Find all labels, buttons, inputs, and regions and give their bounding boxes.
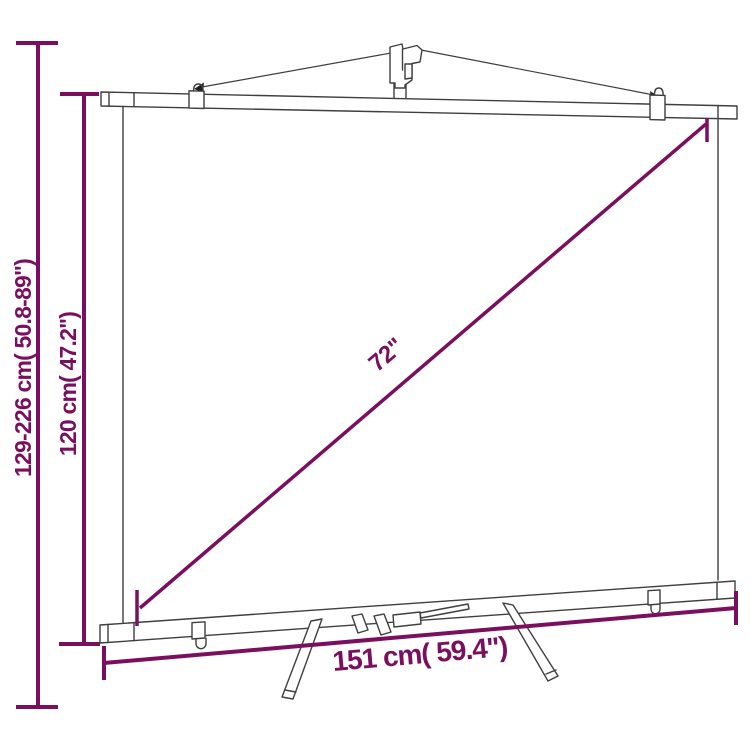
- bottom-clamp-left-hook: [196, 638, 206, 648]
- screen-height-label: 120 cm( 47.2"): [55, 312, 81, 456]
- tripod-leg-right: [503, 603, 558, 681]
- bottom-clamp-right-hook: [651, 604, 660, 613]
- top-hook-right: [655, 88, 664, 95]
- hanging-wires: [194, 50, 660, 101]
- diagram-canvas: 129-226 cm( 50.8-89") 120 cm( 47.2") 72"…: [0, 0, 750, 750]
- tripod-hub: [393, 612, 421, 627]
- bottom-clamp-left-tab: [192, 622, 205, 639]
- top-collar-right: [650, 95, 665, 120]
- wire-left: [202, 53, 391, 87]
- tripod-leg-left: [282, 619, 322, 699]
- top-bracket-notch: [405, 64, 412, 79]
- wire-right: [421, 50, 654, 95]
- product-dimension-diagram: 129-226 cm( 50.8-89") 120 cm( 47.2") 72"…: [0, 0, 750, 750]
- top-collar-left: [189, 91, 204, 109]
- diagonal-line: [140, 124, 706, 608]
- diagonal-label: 72": [364, 333, 409, 377]
- screen-width-label: 151 cm( 59.4"): [331, 631, 508, 677]
- stand-height-label: 129-226 cm( 50.8-89"): [10, 259, 36, 477]
- bottom-clamp-right-tab: [648, 590, 660, 605]
- diagonal-dimension-line: [137, 118, 707, 626]
